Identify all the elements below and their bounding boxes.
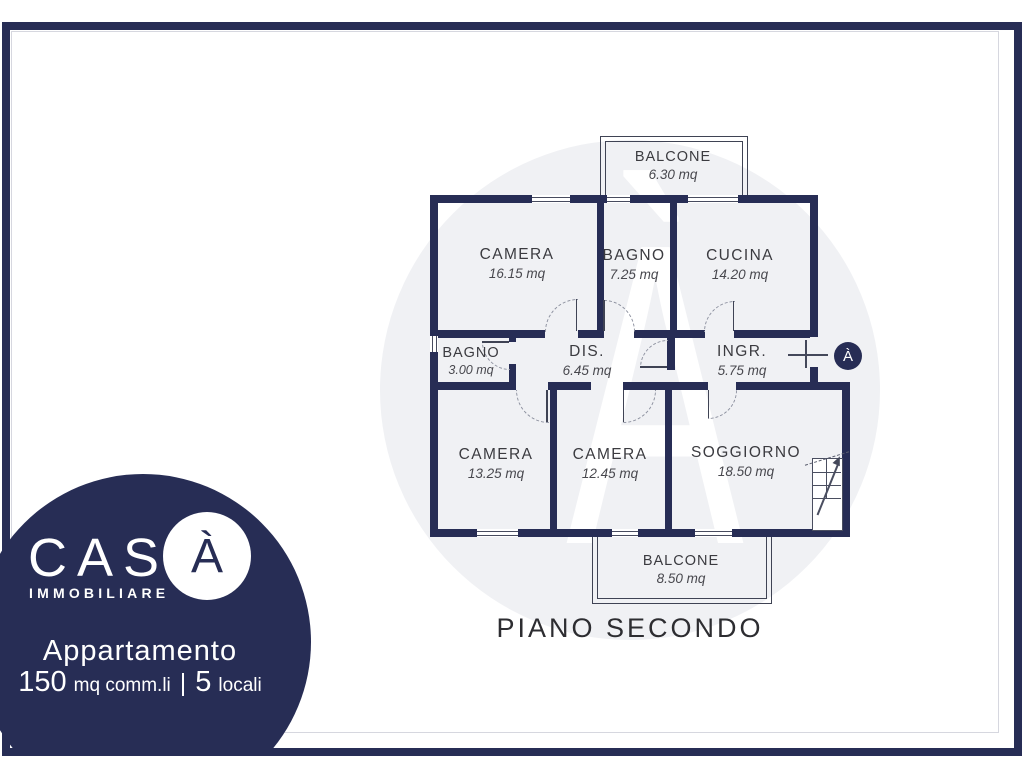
brand-name: CAS (28, 527, 169, 589)
listing-rooms-value: 5 (195, 666, 211, 699)
floorplan-page: À (0, 0, 1024, 768)
listing-separator: | (178, 669, 189, 698)
listing-type: Appartamento (10, 635, 270, 668)
listing-rooms-unit: locali (218, 675, 261, 697)
listing-size-unit: mq comm.li (74, 675, 171, 697)
listing-size-value: 150 (18, 666, 66, 699)
brand-accent-letter: À (191, 529, 223, 584)
brand-accent-circle: À (163, 512, 251, 600)
brand-subtitle: IMMOBILIARE (29, 585, 169, 601)
listing-size-line: 150 mq comm.li | 5 locali (5, 666, 275, 699)
logo-blob-circle (0, 474, 311, 748)
logo-blob-clip (0, 470, 340, 748)
